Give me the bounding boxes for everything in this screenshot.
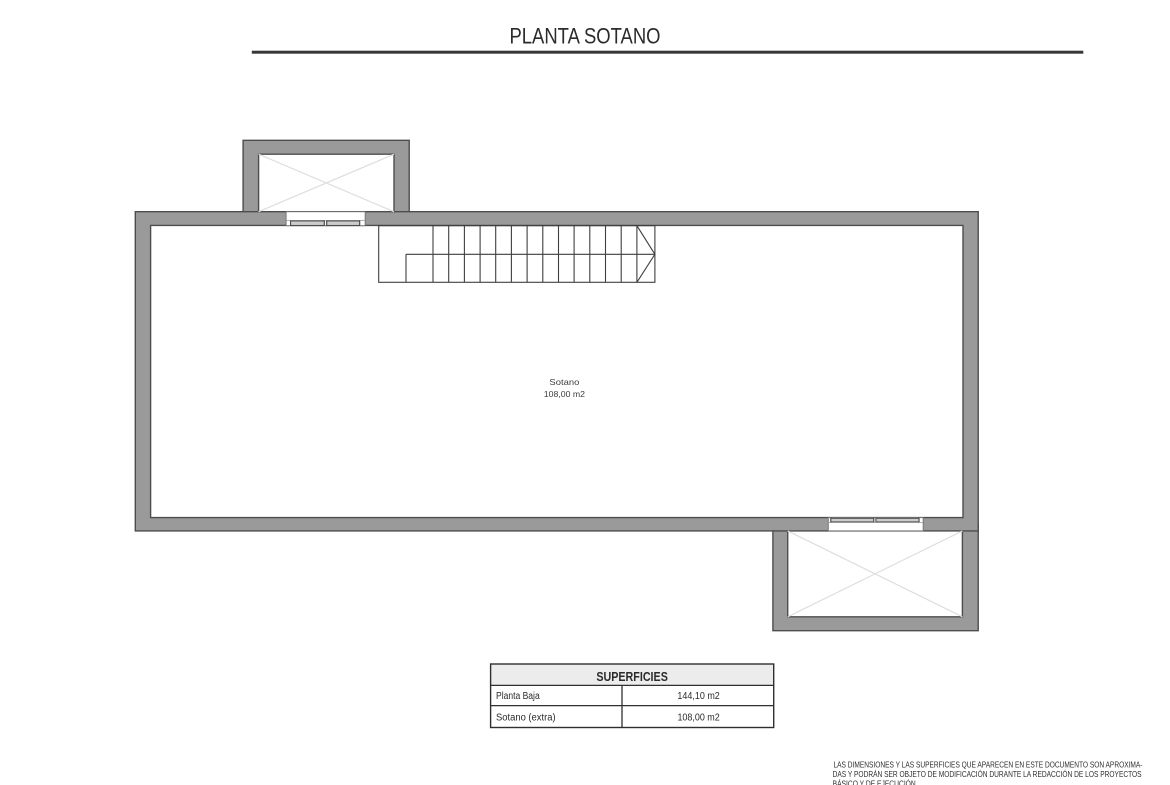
svg-text:PLANTA SOTANO: PLANTA SOTANO bbox=[510, 23, 661, 48]
svg-text:144,10 m2: 144,10 m2 bbox=[677, 691, 720, 702]
svg-text:DAS Y PODRÁN SER OBJETO DE MOD: DAS Y PODRÁN SER OBJETO DE MODIFICACIÓN … bbox=[833, 769, 1142, 779]
svg-text:Sotano: Sotano bbox=[549, 377, 579, 387]
svg-text:Planta Baja: Planta Baja bbox=[496, 691, 540, 702]
svg-text:SUPERFICIES: SUPERFICIES bbox=[596, 669, 668, 684]
svg-text:108,00 m2: 108,00 m2 bbox=[544, 389, 586, 399]
svg-text:108,00 m2: 108,00 m2 bbox=[677, 712, 720, 723]
svg-text:BÁSICO Y DE EJECUCIÓN.: BÁSICO Y DE EJECUCIÓN. bbox=[833, 779, 918, 785]
svg-text:LAS DIMENSIONES Y LAS SUPERFIC: LAS DIMENSIONES Y LAS SUPERFICIES QUE AP… bbox=[834, 759, 1143, 769]
svg-text:Sotano (extra): Sotano (extra) bbox=[496, 712, 556, 723]
